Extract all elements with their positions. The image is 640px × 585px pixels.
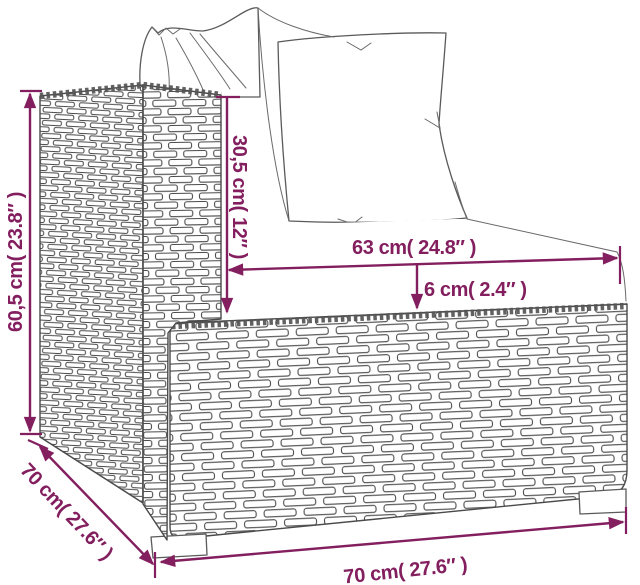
dimension-total-height: 60,5 cm( 23.8″ ) — [5, 91, 42, 434]
product-dimension-diagram: 60,5 cm( 23.8″ ) 30,5 cm( 12″ ) 63 cm( 2… — [0, 0, 640, 585]
pillow-right-top-slope — [258, 8, 334, 37]
panel-outer-face — [40, 85, 143, 503]
seat-base — [170, 304, 627, 539]
seat-base-front-face — [170, 304, 627, 539]
back-pillow-left — [140, 8, 260, 97]
foot-right — [579, 489, 626, 514]
sofa-illustration: 60,5 cm( 23.8″ ) 30,5 cm( 12″ ) 63 cm( 2… — [0, 0, 640, 585]
depth-top-tick — [28, 440, 48, 449]
back-pillow-right — [258, 8, 467, 224]
total-height-label: 60,5 cm( 23.8″ ) — [5, 192, 27, 332]
seat-width-label: 63 cm( 24.8″ ) — [352, 237, 476, 259]
back-height-label: 30,5 cm( 12″ ) — [228, 135, 250, 259]
foot-left — [151, 534, 207, 558]
total-width-label: 70 cm( 27.6″ ) — [343, 554, 469, 585]
seat-thickness-label: 6 cm( 2.4″ ) — [424, 279, 527, 301]
